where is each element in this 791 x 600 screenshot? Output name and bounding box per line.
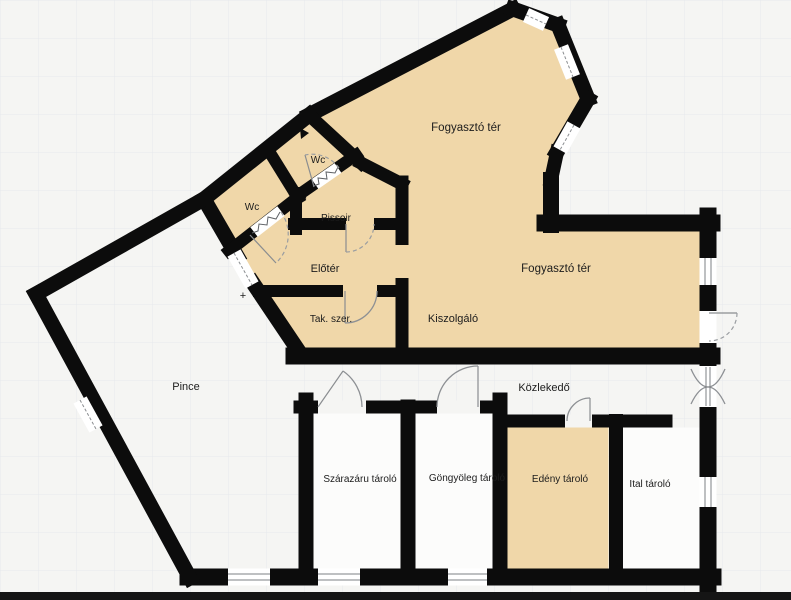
label-wc-upper: Wc <box>311 155 325 166</box>
label-edeny-tarolo: Edény tároló <box>532 474 589 485</box>
floor-plan-screenshot: + Fogyasztó tér Wc Wc Pissoir Előtér Tak… <box>0 0 791 600</box>
label-kozlekedo: Közlekedő <box>518 382 569 394</box>
label-tak-szer: Tak. szer. <box>310 314 352 325</box>
right-wall-door-opening <box>700 311 717 343</box>
room-gongyoleg-fill <box>416 414 493 569</box>
right-wall-window-1 <box>700 258 717 285</box>
label-fogyaszto-ter-upper: Fogyasztó tér <box>431 122 501 134</box>
label-fogyaszto-ter-lower: Fogyasztó tér <box>521 263 591 275</box>
label-kiszolgalo: Kiszolgáló <box>428 313 478 325</box>
label-ital-tarolo: Ital tároló <box>629 479 671 490</box>
right-wall-window-2 <box>700 477 717 507</box>
edeny-door-opening <box>565 415 592 428</box>
bottom-window-2 <box>318 569 360 586</box>
room-ital-fill <box>623 428 700 569</box>
entrance-plus-marker: + <box>240 290 246 302</box>
eloter-kiszolgalo-opening <box>396 245 409 278</box>
label-pince: Pince <box>172 381 200 393</box>
room-edeny-fill <box>508 428 609 569</box>
label-eloter: Előtér <box>311 263 340 275</box>
label-wc-left: Wc <box>245 202 259 213</box>
szarazaru-door-opening <box>318 401 366 414</box>
gongyoleg-door-opening <box>437 401 480 414</box>
floor-plan-canvas: + Fogyasztó tér Wc Wc Pissoir Előtér Tak… <box>0 0 791 600</box>
room-szarazaru-fill <box>314 414 401 569</box>
label-gongyoleg-tarolo: Göngyöleg tároló <box>429 473 506 484</box>
bottom-edge-bar <box>0 592 791 600</box>
bottom-window-1 <box>228 569 270 586</box>
bottom-window-3 <box>448 569 487 586</box>
label-pissoir: Pissoir <box>321 213 352 224</box>
label-szarazaru-tarolo: Szárazáru tároló <box>323 474 397 485</box>
takszer-door-opening <box>343 285 377 297</box>
